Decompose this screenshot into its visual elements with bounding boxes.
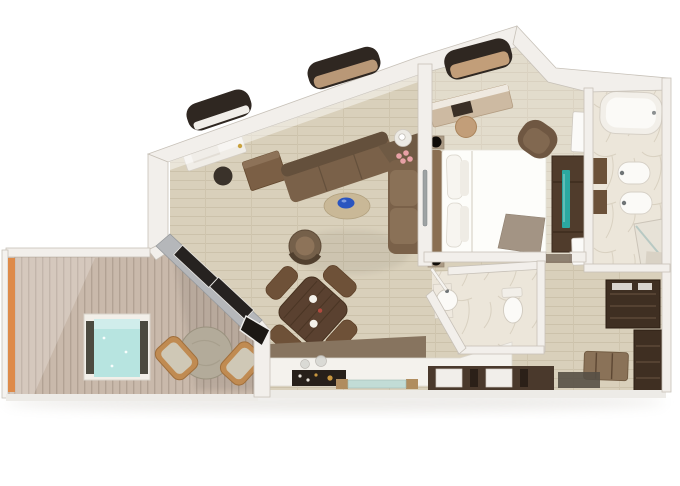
sink-faucet: [620, 171, 624, 175]
folded-linen: [612, 283, 632, 290]
bedroom-bottom-wall-right: [570, 252, 586, 262]
sink-faucet: [622, 201, 626, 205]
sofa-cushion: [390, 208, 418, 244]
balcony-top-wall: [6, 248, 150, 257]
pool-rail-left: [86, 321, 94, 374]
bed-pillow-inner: [460, 160, 469, 196]
toilet-bowl: [504, 297, 523, 323]
bed-throw: [498, 214, 545, 254]
bottle: [314, 373, 317, 376]
towel-shelf: [592, 190, 607, 214]
powder-right-wall: [537, 261, 545, 352]
wood-accent-block: [336, 379, 348, 389]
balcony-left-band: [2, 250, 8, 398]
closet-panel-white: [436, 369, 462, 387]
folded-linen: [638, 283, 652, 290]
balcony-orange-edge: [8, 258, 15, 392]
glass-decanter: [301, 360, 310, 369]
bottle: [298, 374, 301, 377]
entry-mat: [558, 372, 600, 388]
glass-decanter: [316, 356, 327, 367]
pool-sparkle: [111, 365, 114, 368]
vanity-stool: [456, 117, 477, 138]
floor-plan-canvas: [0, 0, 680, 486]
gold-decor-dot: [238, 144, 242, 148]
bed-pillow-inner: [460, 206, 469, 242]
closet-panel-dark: [470, 369, 478, 387]
closet-panel-dark: [520, 369, 528, 387]
glass-shelf: [348, 380, 406, 388]
bedroom-bottom-wall: [424, 252, 546, 262]
flower: [400, 158, 406, 164]
bottle: [327, 375, 332, 380]
toilet-tank: [502, 287, 522, 297]
blue-bowl-highlight: [342, 200, 347, 203]
wardrobe-column: [634, 330, 662, 392]
closet-panel-white: [486, 369, 512, 387]
powder-bottom-wall: [458, 346, 544, 354]
left-wall: [148, 154, 168, 250]
coffee-cup: [399, 134, 405, 140]
bottom-outer-band: [256, 390, 666, 398]
wood-accent-block: [406, 379, 418, 389]
pool-sparkle: [125, 351, 128, 354]
tv-screen: [562, 170, 570, 228]
balcony-bottom-band: [6, 394, 258, 401]
living-bedroom-wall: [418, 64, 432, 266]
tub-basin: [605, 97, 656, 129]
bathtub: [599, 91, 662, 135]
flower: [396, 153, 402, 159]
bedroom-door-threshold: [546, 254, 572, 263]
right-wall: [662, 78, 671, 392]
swivel-chair-cushion: [296, 237, 315, 256]
pool-water-highlight: [94, 319, 140, 329]
bedroom-bathroom-wall: [584, 88, 593, 268]
flower: [403, 150, 409, 156]
pool-rail-right: [140, 321, 148, 374]
suite-floor-plan-render: [0, 0, 680, 486]
bench-strap: [612, 353, 613, 379]
living-tv-panel: [423, 170, 427, 226]
bottle: [306, 378, 309, 381]
flower: [407, 156, 413, 162]
bathroom-bottom-wall: [584, 264, 670, 272]
pool-sparkle: [103, 337, 106, 340]
sofa-cushion: [390, 170, 418, 206]
desk-chair: [214, 167, 233, 186]
towel-shelf: [592, 158, 607, 184]
blue-bowl: [338, 198, 355, 209]
